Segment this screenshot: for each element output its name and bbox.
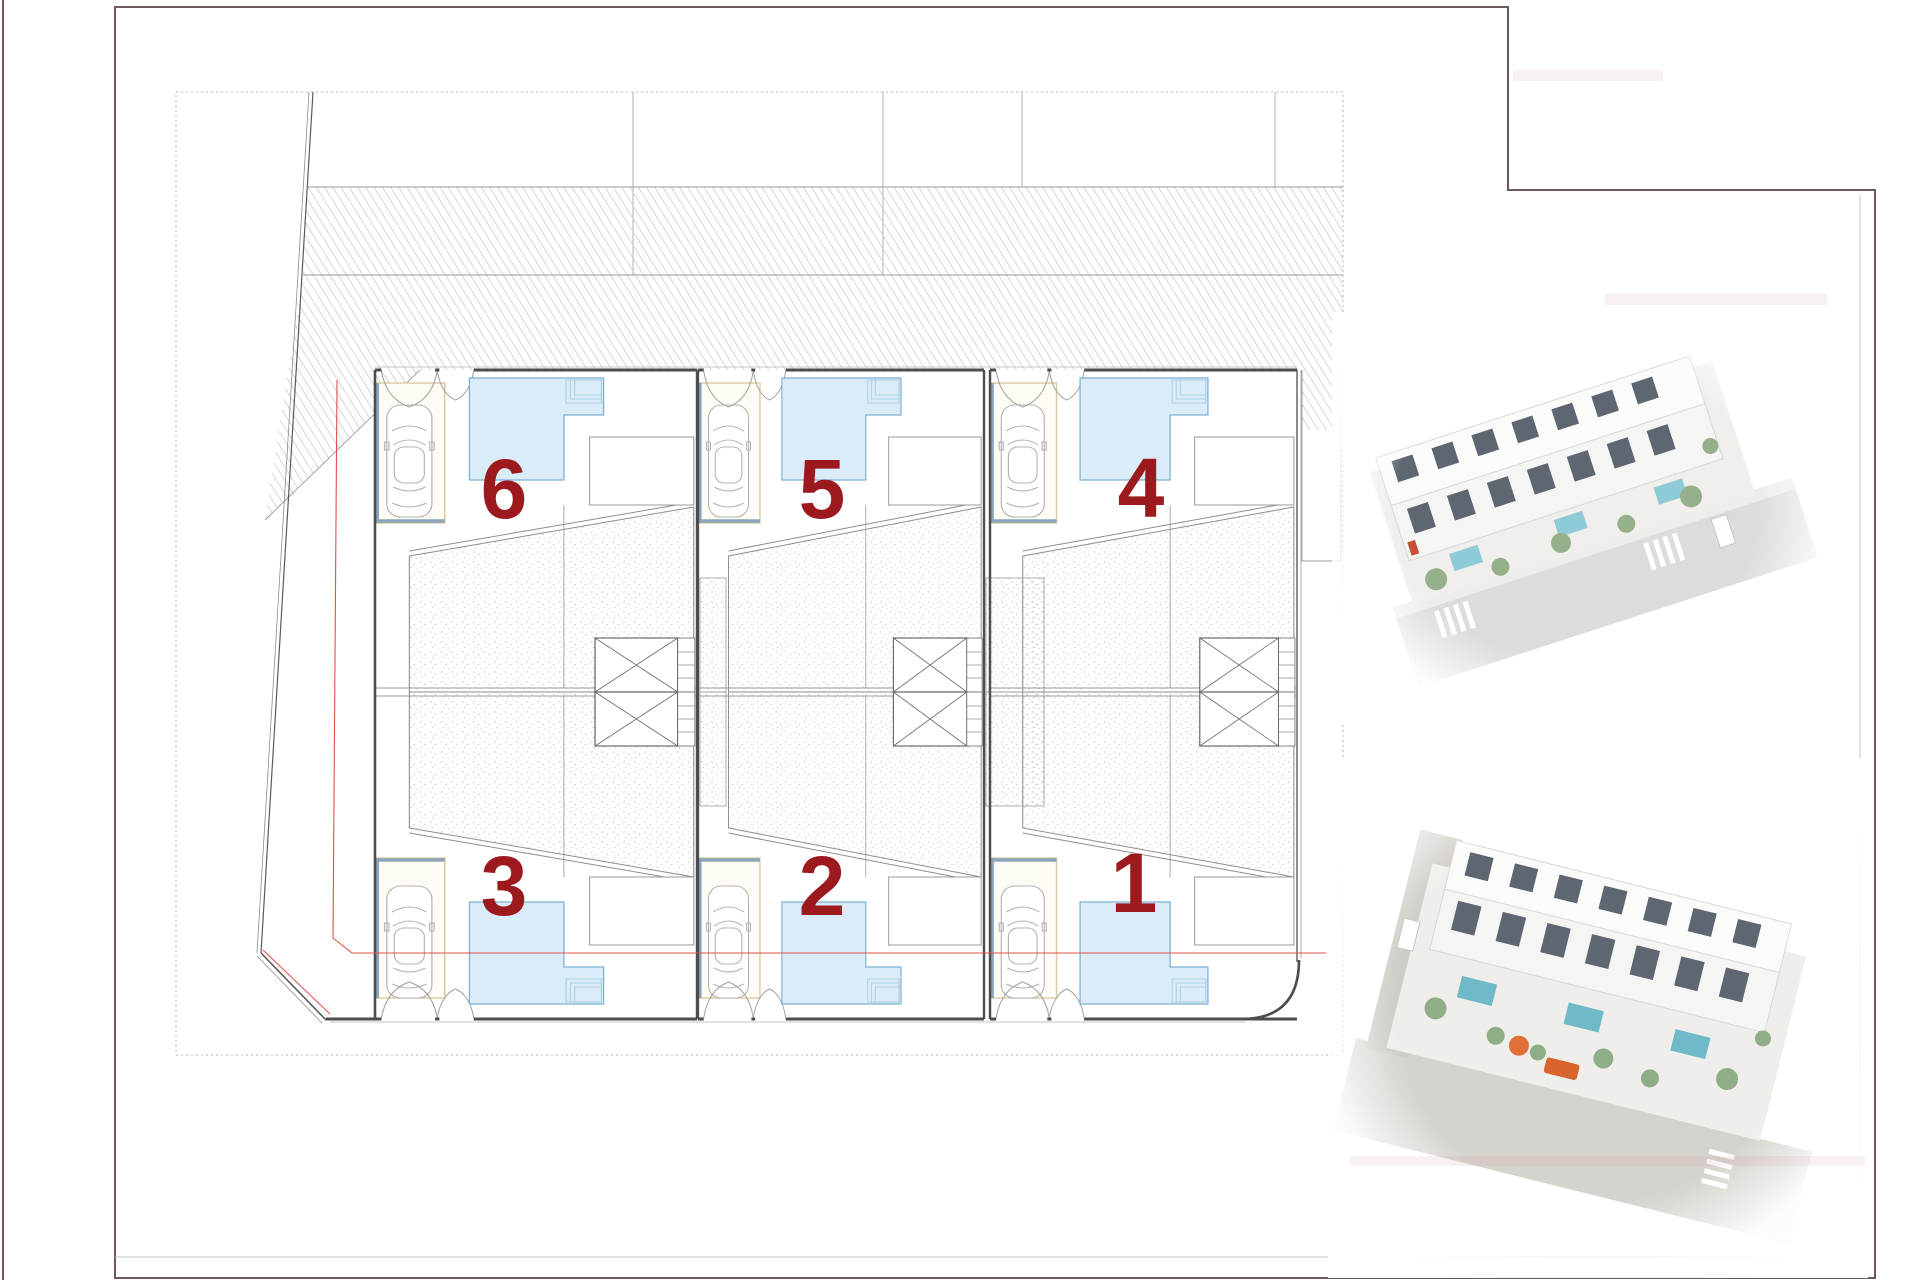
unit-number-3: 3 (481, 839, 528, 933)
watermark-smudge (1513, 70, 1663, 81)
render-1-image (1332, 312, 1822, 722)
render-2-image (1328, 758, 1868, 1278)
unit-number-4: 4 (1118, 441, 1165, 535)
unit-pair-6-3 (375, 370, 697, 1019)
watermark-smudge (1350, 1156, 1865, 1166)
unit-number-1: 1 (1111, 836, 1158, 930)
setback-red-line-chamfer (263, 950, 330, 1014)
unit-number-2: 2 (799, 839, 846, 933)
watermark-smudge (1605, 293, 1827, 305)
unit-number-5: 5 (799, 442, 846, 536)
site-plan-drawing: 6 5 4 3 2 1 (0, 0, 1920, 1280)
plan-sheet: 6 5 4 3 2 1 (0, 0, 1920, 1280)
unit-number-6: 6 (481, 442, 528, 536)
